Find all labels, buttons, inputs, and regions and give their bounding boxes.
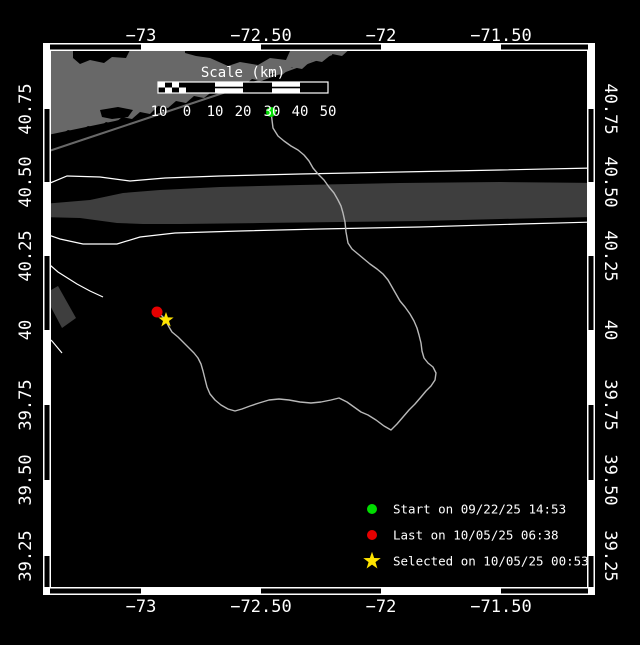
legend-start-dot [367,504,377,514]
scale-segment-dark [300,82,328,93]
frame-tick-segment-right [589,256,594,330]
lat-label-left: 40.75 [16,83,36,134]
scale-checker-cell [165,88,172,94]
lon-label-top: −71.50 [470,26,531,46]
lon-label-bottom: −71.50 [470,597,531,617]
scale-km-label: 30 [264,104,281,120]
scale-km-label: 40 [292,104,309,120]
lat-label-right: 40.25 [600,230,620,281]
lon-label-bottom: −72 [366,597,397,617]
lat-label-left: 39.50 [16,454,36,505]
scale-bar-cells [158,82,328,93]
legend: Start on 09/22/25 14:53Last on 10/05/25 … [363,502,588,569]
legend-last-dot [367,530,377,540]
lon-label-bottom: −72.50 [230,597,291,617]
frame-tick-segment-left [45,405,50,480]
lon-label-bottom: −73 [126,597,157,617]
scale-checker-cell [172,82,179,88]
scale-km-label: 50 [320,104,337,120]
lat-label-right: 39.75 [600,379,620,430]
lat-label-left: 40.50 [16,156,36,207]
scale-checker-cell [158,88,165,94]
frame-tick-segment-right [589,405,594,480]
lat-label-left: 39.75 [16,379,36,430]
scale-segment-dark [243,82,272,93]
frame-tick-segment-right [589,556,594,587]
frame-tick-segment-bottom [261,589,381,594]
drifter-track-map: Scale (km) 1001020304050 −73−73−72.50−72… [0,0,640,640]
frame-tick-segment-left [45,556,50,587]
scale-segment-stripe [215,87,243,89]
lat-label-right: 40.50 [600,156,620,207]
last-marker[interactable] [152,307,163,318]
lat-label-left: 39.25 [16,530,36,581]
scale-km-label: 0 [183,104,191,120]
scale-checker-cell [158,82,165,88]
frame-tick-segment-bottom [50,589,141,594]
frame-tick-segment-right [589,109,594,182]
lat-label-right: 40 [600,320,620,340]
frame-tick-segment-bottom [501,589,588,594]
legend-start-label: Start on 09/22/25 14:53 [393,502,566,517]
scale-bar-title: Scale (km) [201,65,285,81]
scale-segment-dark [186,82,215,93]
lat-label-left: 40.25 [16,230,36,281]
scale-km-label: 10 [207,104,224,120]
scale-checker-cell [165,82,172,88]
scale-checker-cell [179,88,186,94]
scale-checker-cell [172,88,179,94]
lon-label-top: −72.50 [230,26,291,46]
scale-km-label: 10 [151,104,168,120]
lat-label-right: 39.50 [600,454,620,505]
scale-km-label: 20 [235,104,252,120]
lat-label-left: 40 [16,320,36,340]
lon-label-top: −73 [126,26,157,46]
lat-label-right: 39.25 [600,530,620,581]
lat-label-right: 40.75 [600,83,620,134]
scale-checker-cell [179,82,186,88]
frame-tick-segment-left [45,256,50,330]
legend-selected-label: Selected on 10/05/25 00:53 [393,554,589,569]
scale-segment-stripe [272,87,300,89]
frame-tick-segment-left [45,109,50,182]
lon-label-top: −72 [366,26,397,46]
legend-last-label: Last on 10/05/25 06:38 [393,528,559,543]
